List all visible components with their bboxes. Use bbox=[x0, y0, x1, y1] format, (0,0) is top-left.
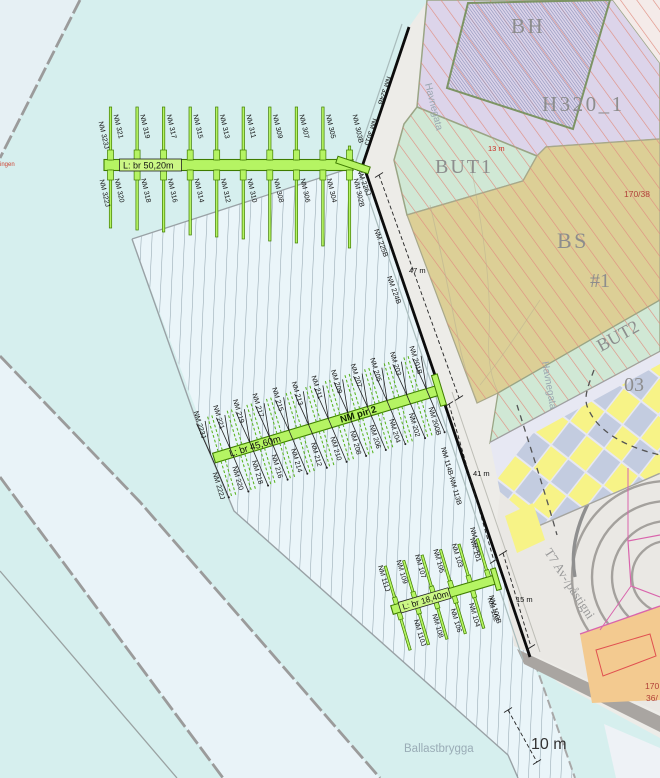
svg-text:15 m: 15 m bbox=[516, 595, 533, 604]
svg-text:BS: BS bbox=[557, 228, 589, 253]
svg-text:47 m: 47 m bbox=[409, 266, 426, 275]
svg-text:BH: BH bbox=[511, 14, 545, 38]
svg-text:BUT1: BUT1 bbox=[435, 156, 493, 178]
svg-text:#1: #1 bbox=[590, 270, 610, 292]
svg-text:03: 03 bbox=[624, 374, 644, 396]
svg-text:L: br 50,20m: L: br 50,20m bbox=[123, 161, 174, 171]
svg-text:170: 170 bbox=[645, 681, 659, 691]
svg-text:10 m: 10 m bbox=[531, 736, 567, 753]
svg-text:36/: 36/ bbox=[646, 693, 658, 703]
svg-text:41 m: 41 m bbox=[473, 469, 490, 478]
svg-text:ingen: ingen bbox=[0, 162, 15, 168]
svg-text:H320_1: H320_1 bbox=[542, 92, 625, 116]
svg-text:13 m: 13 m bbox=[488, 144, 505, 153]
svg-text:Ballastbrygga: Ballastbrygga bbox=[404, 743, 474, 755]
svg-text:170/38: 170/38 bbox=[624, 189, 650, 199]
